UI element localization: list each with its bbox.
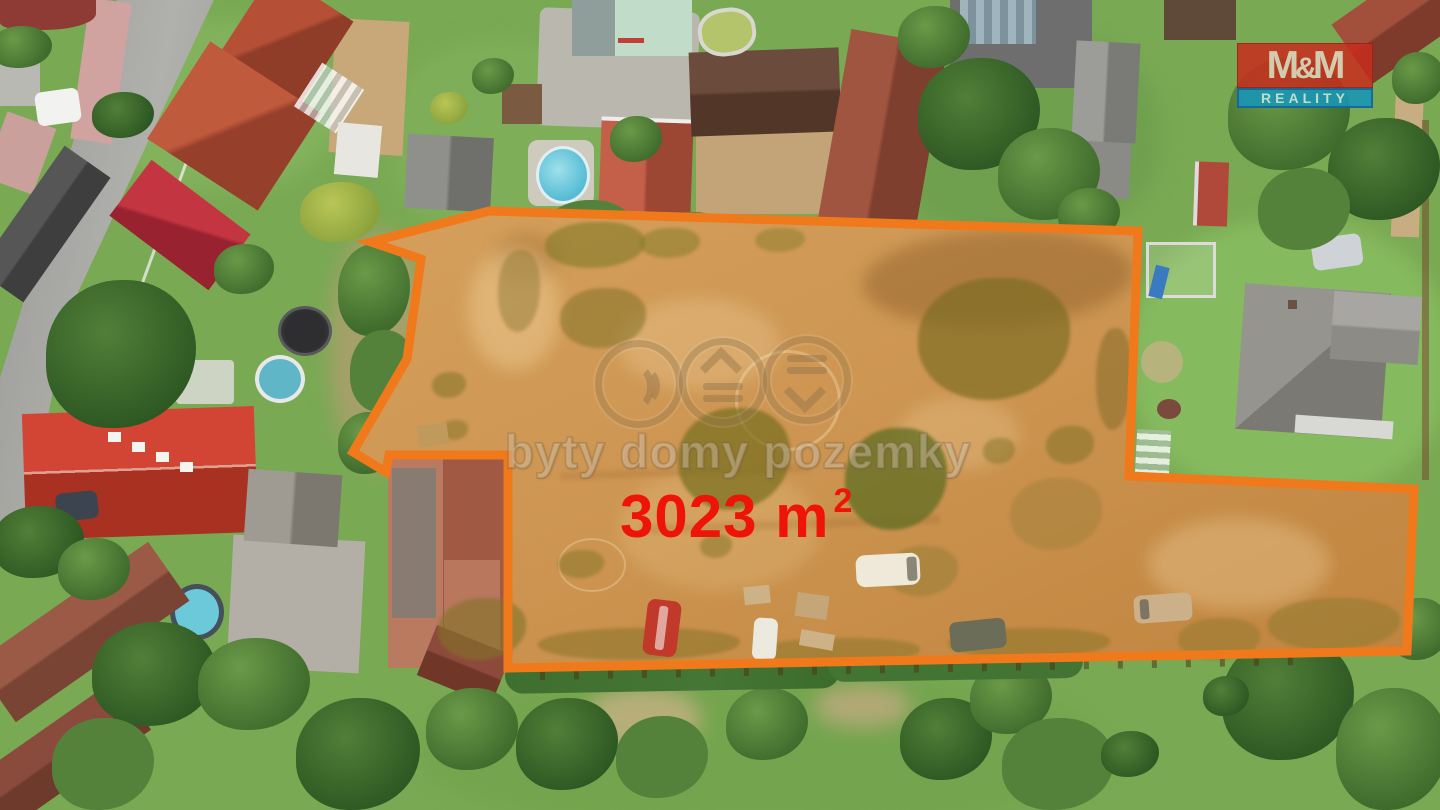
chevron-down-icon	[784, 371, 826, 413]
bar-icon	[703, 383, 743, 390]
watermark-circle	[679, 338, 767, 426]
area-label: 3023 m2	[620, 482, 849, 551]
area-superscript: 2	[834, 482, 854, 520]
watermark-circle	[763, 336, 851, 424]
mm-reality-logo: M&M REALITY	[1237, 43, 1373, 108]
area-value: 3023 m	[620, 483, 830, 550]
logo-m1: M	[1267, 44, 1298, 88]
logo-reality-text: REALITY	[1261, 90, 1349, 106]
logo-mm-box: M&M	[1237, 43, 1373, 88]
logo-m2: M	[1313, 44, 1344, 88]
watermark-text: byty domy pozemky	[505, 424, 971, 479]
bar-icon	[703, 395, 743, 402]
logo-ampersand: &	[1295, 52, 1315, 86]
waves-right-icon	[630, 367, 660, 405]
logo-reality-bar: REALITY	[1237, 88, 1373, 108]
aerial-photo: byty domy pozemky 3023 m2 M&M REALITY	[0, 0, 1440, 810]
bar-icon	[787, 355, 827, 362]
watermark-circle	[595, 340, 683, 428]
